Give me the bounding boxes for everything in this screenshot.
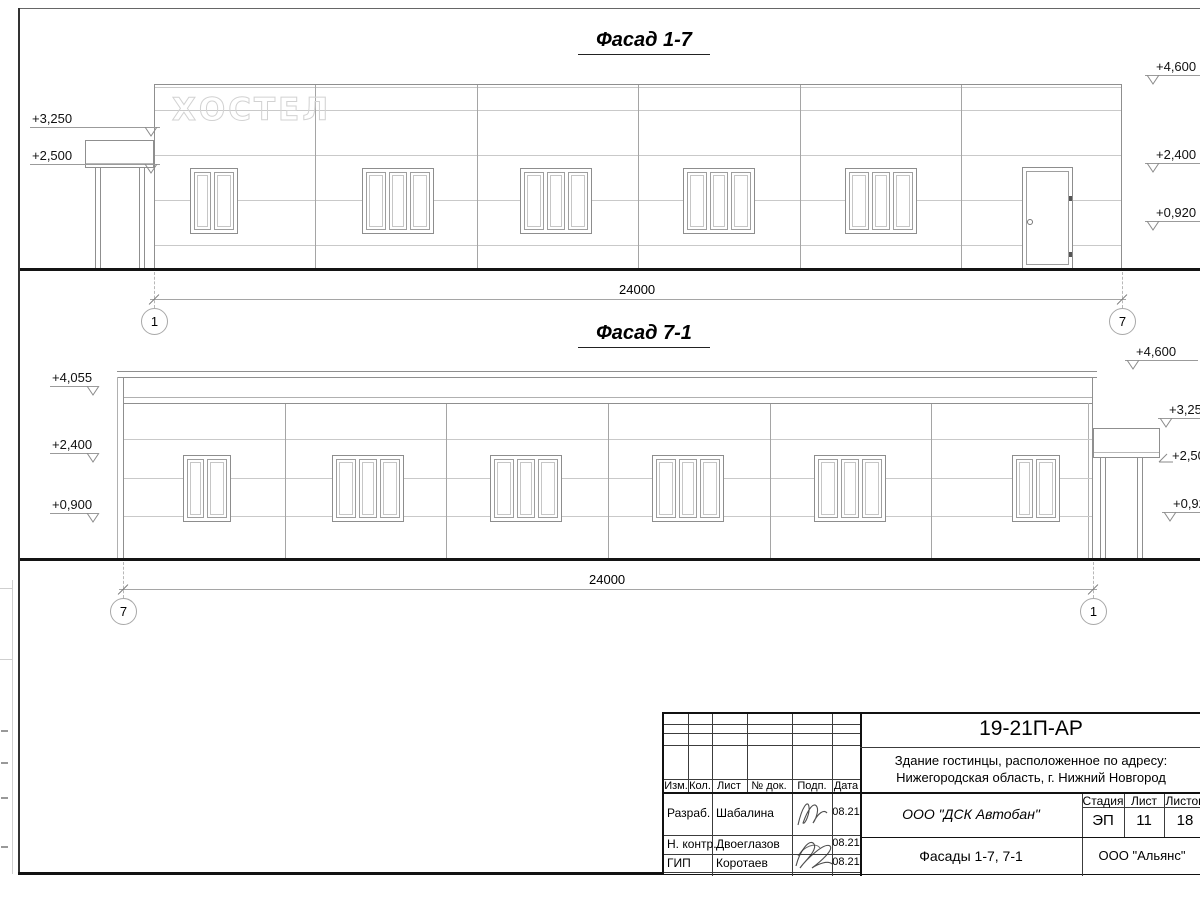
window xyxy=(183,455,231,522)
level-arrow-icon xyxy=(144,164,158,174)
signer-name: Коротаев xyxy=(716,856,768,870)
level-mark: +4,055 xyxy=(50,370,98,387)
facade-1-7-title: Фасад 1-7 xyxy=(578,29,710,55)
level-arrow-icon xyxy=(144,127,158,137)
stage-label: Стадия xyxy=(1083,794,1124,808)
panel-joint xyxy=(477,85,478,269)
level-mark: +2,500 xyxy=(1158,448,1200,464)
level-arrow-icon xyxy=(1146,163,1160,173)
project-address-line2: Нижегородская область, г. Нижний Новгоро… xyxy=(896,770,1166,785)
level-mark: +4,600 xyxy=(1125,344,1198,361)
window-pane xyxy=(187,459,204,518)
panel-joint xyxy=(608,404,609,559)
panel-joint xyxy=(638,85,639,269)
canopy-roof xyxy=(1093,428,1160,458)
rev-col-podp: Подп. xyxy=(797,780,826,792)
axis-bubble: 7 xyxy=(1109,308,1136,335)
panel-joint xyxy=(285,404,286,559)
level-arrow-icon xyxy=(1146,221,1160,231)
edge-fragment-mark xyxy=(1,797,8,799)
axis-bubble: 7 xyxy=(110,598,137,625)
level-angle-icon xyxy=(1158,452,1174,464)
window-pane xyxy=(366,172,386,230)
sheet-label: Лист xyxy=(1131,794,1157,808)
window-pane xyxy=(731,172,751,230)
window-pane xyxy=(214,172,234,230)
panel-joint xyxy=(931,404,932,559)
edge-fragment-mark xyxy=(1,730,8,732)
parapet-line xyxy=(117,371,1097,372)
dimension-value: 24000 xyxy=(589,572,625,587)
door-leaf xyxy=(1026,171,1069,265)
window xyxy=(190,168,238,234)
rev-col-data: Дата xyxy=(834,780,858,792)
window-pane xyxy=(380,459,400,518)
ground-line xyxy=(20,558,1200,561)
window-pane xyxy=(862,459,882,518)
window-pane xyxy=(410,172,430,230)
window-pane xyxy=(872,172,889,230)
signer-date: 08.21 xyxy=(832,856,860,868)
panel-joint xyxy=(800,85,801,269)
door-hinge-icon xyxy=(1069,252,1072,257)
window xyxy=(814,455,886,522)
window xyxy=(652,455,724,522)
signer-name: Шабалина xyxy=(716,806,774,820)
level-mark: +2,400 xyxy=(50,437,98,454)
window-pane xyxy=(679,459,696,518)
rev-col-ndok: № док. xyxy=(751,780,786,792)
window-pane xyxy=(849,172,869,230)
canopy-post xyxy=(139,168,145,268)
dimension-line xyxy=(150,299,1126,300)
level-mark: +2,400 xyxy=(1145,147,1200,164)
window xyxy=(520,168,592,234)
window-pane xyxy=(494,459,514,518)
window-pane xyxy=(1016,459,1033,518)
signer-role: Н. контр. xyxy=(667,837,717,851)
sheet-title: Фасады 1-7, 7-1 xyxy=(919,848,1023,864)
client-company: ООО "Альянс" xyxy=(1099,848,1186,863)
canopy-edge-line xyxy=(1094,452,1159,453)
rev-col-kol: Кол. xyxy=(689,780,711,792)
entrance-door xyxy=(1022,167,1073,269)
ground-line xyxy=(20,268,1200,271)
rev-col-list: Лист xyxy=(717,780,741,792)
panel-joint xyxy=(446,404,447,559)
signer-name: Двоеглазов xyxy=(716,837,780,851)
edge-fragment-mark xyxy=(1,846,8,848)
level-arrow-icon xyxy=(1163,512,1177,522)
total-value: 18 xyxy=(1177,812,1194,829)
axis-extension-line xyxy=(1093,562,1094,598)
window-pane xyxy=(547,172,564,230)
window-pane xyxy=(1036,459,1056,518)
window-pane xyxy=(538,459,558,518)
edge-fragment-line xyxy=(12,580,13,874)
panel-joint xyxy=(961,85,962,269)
signer-date: 08.21 xyxy=(832,806,860,818)
level-arrow-icon xyxy=(1126,360,1140,370)
title-block: Изм. Кол. Лист № док. Подп. Дата Разраб.… xyxy=(662,712,1200,874)
window-pane xyxy=(687,172,707,230)
axis-bubble: 1 xyxy=(1080,598,1107,625)
level-arrow-icon xyxy=(86,453,100,463)
level-mark: +3,250 xyxy=(30,111,160,128)
stage-value: ЭП xyxy=(1092,812,1114,829)
window xyxy=(362,168,434,234)
window xyxy=(1012,455,1060,522)
window-pane xyxy=(389,172,406,230)
door-hinge-icon xyxy=(1069,196,1072,201)
edge-fragment-mark xyxy=(1,762,8,764)
frame-left-border xyxy=(18,8,20,874)
level-mark: +0,900 xyxy=(50,497,98,514)
level-arrow-icon xyxy=(86,513,100,523)
sheet-value: 11 xyxy=(1136,812,1152,829)
window-pane xyxy=(517,459,534,518)
signature-icon xyxy=(790,832,836,876)
signature-icon xyxy=(794,797,830,831)
window-pane xyxy=(818,459,838,518)
axis-extension-line xyxy=(123,562,124,598)
window-pane xyxy=(568,172,588,230)
drawing-sheet: Фасад 1-7 ХОСТЕЛ +3,250 +2,500 +4,600 xyxy=(0,0,1200,900)
window xyxy=(332,455,404,522)
dimension-value: 24000 xyxy=(619,282,655,297)
window xyxy=(490,455,562,522)
axis-extension-line xyxy=(154,272,155,308)
window-pane xyxy=(710,172,727,230)
window-pane xyxy=(359,459,376,518)
window xyxy=(845,168,917,234)
canopy-post xyxy=(95,168,101,268)
axis-bubble: 1 xyxy=(141,308,168,335)
axis-extension-line xyxy=(1122,272,1123,308)
design-company: ООО "ДСК Автобан" xyxy=(902,806,1040,822)
canopy-post xyxy=(1100,458,1106,558)
window-pane xyxy=(700,459,720,518)
panel-joint xyxy=(770,404,771,559)
corner-trim-line xyxy=(1088,403,1089,560)
window-pane xyxy=(893,172,913,230)
project-address-line1: Здание гостинцы, расположенное по адресу… xyxy=(895,753,1167,768)
rev-col-izm: Изм. xyxy=(664,780,688,792)
window-pane xyxy=(841,459,858,518)
level-arrow-icon xyxy=(1159,418,1173,428)
facade-7-1-title: Фасад 7-1 xyxy=(578,322,710,348)
signer-date: 08.21 xyxy=(832,837,860,849)
window xyxy=(683,168,755,234)
edge-fragment-line xyxy=(0,588,12,589)
level-mark: +3,250 xyxy=(1158,402,1200,419)
window-pane xyxy=(336,459,356,518)
window-pane xyxy=(524,172,544,230)
level-mark: +0,920 xyxy=(1162,496,1200,513)
frame-top-border xyxy=(18,8,1200,9)
total-label: Листов xyxy=(1166,794,1200,808)
level-mark: +0,920 xyxy=(1145,205,1200,222)
doc-number: 19-21П-АР xyxy=(979,717,1083,741)
level-mark: +2,500 xyxy=(30,148,160,165)
edge-fragment-line xyxy=(0,659,12,660)
level-arrow-icon xyxy=(1146,75,1160,85)
level-mark: +4,600 xyxy=(1145,59,1200,76)
signer-role: ГИП xyxy=(667,856,691,870)
corner-trim-line xyxy=(117,377,118,560)
door-handle-icon xyxy=(1027,219,1033,225)
hostel-sign: ХОСТЕЛ xyxy=(172,92,331,128)
canopy-post xyxy=(1137,458,1143,558)
window-pane xyxy=(656,459,676,518)
signer-role: Разраб. xyxy=(667,806,710,820)
window-pane xyxy=(207,459,227,518)
dimension-line xyxy=(119,589,1097,590)
level-arrow-icon xyxy=(86,386,100,396)
window-pane xyxy=(194,172,211,230)
